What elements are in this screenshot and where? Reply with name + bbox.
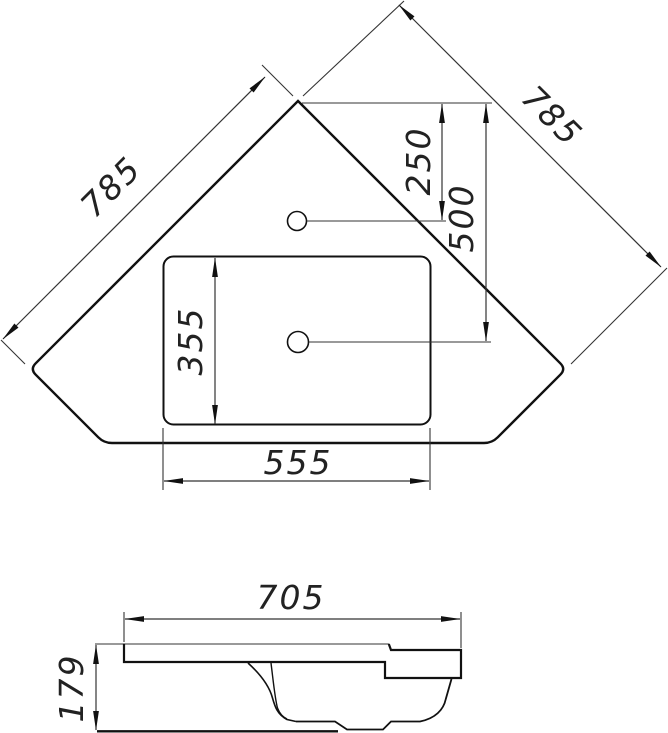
plan-view: 785 785 250 500 355 555 xyxy=(1,1,667,490)
dim-label-555: 555 xyxy=(264,443,333,482)
dim-label-355: 355 xyxy=(171,307,210,376)
washbasin-technical-drawing: 785 785 250 500 355 555 705 179 xyxy=(0,0,668,733)
dim-label-785-left: 785 xyxy=(73,149,149,225)
side-view: 705 179 xyxy=(52,578,461,731)
dim-label-250: 250 xyxy=(399,127,438,196)
countertop-profile xyxy=(124,644,461,678)
extension-line-right-vertex xyxy=(571,268,667,364)
extension-line-left-vertex xyxy=(1,340,25,364)
dim-label-785-right: 785 xyxy=(514,78,590,154)
extension-line-top-left xyxy=(262,65,293,96)
technical-drawing-page: 785 785 250 500 355 555 705 179 xyxy=(0,0,668,733)
dim-label-705: 705 xyxy=(257,578,326,617)
dim-label-500: 500 xyxy=(442,184,481,253)
bowl-inner-left-wall xyxy=(271,663,287,719)
extension-line-top-right xyxy=(303,1,404,96)
dim-label-179: 179 xyxy=(52,654,91,723)
bowl-bottom-and-drain-boss xyxy=(296,679,452,730)
dim-line-785-right xyxy=(399,5,661,267)
